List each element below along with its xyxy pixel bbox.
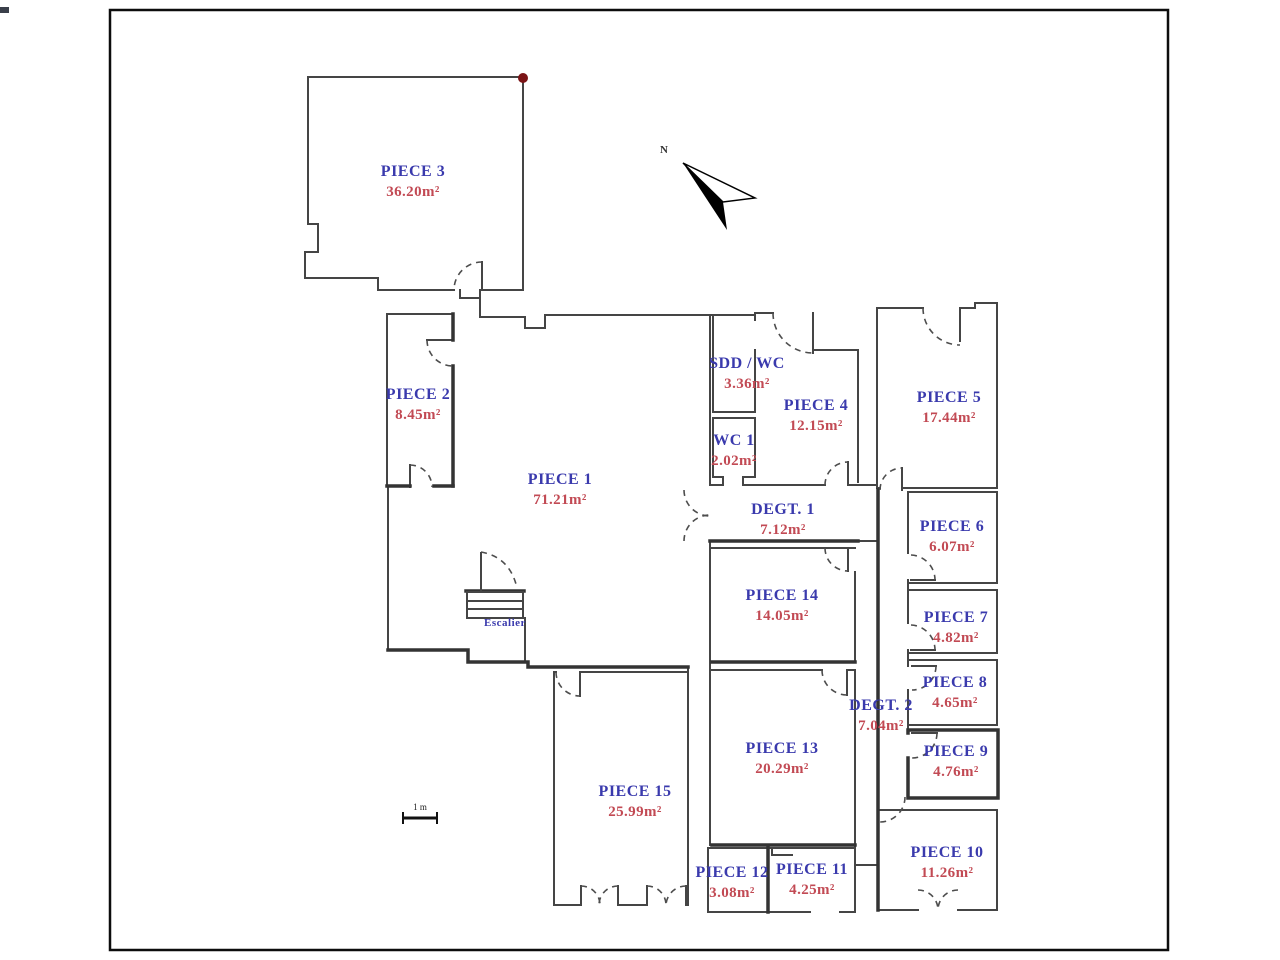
room-name: DEGT. 1 <box>751 501 815 518</box>
room-name: PIECE 7 <box>924 609 988 626</box>
room-area: 11.26m² <box>921 865 974 881</box>
room-name: PIECE 3 <box>381 163 445 180</box>
room-name: PIECE 14 <box>746 587 819 604</box>
floor-plan-page: Escalier N 1 m PIECE 171.21m²PIECE 28.45… <box>0 0 1280 960</box>
room-name: PIECE 1 <box>528 471 592 488</box>
room-area: 4.65m² <box>932 695 978 711</box>
room-area: 20.29m² <box>755 761 809 777</box>
room-area: 3.08m² <box>709 885 755 901</box>
room-area: 3.36m² <box>724 376 770 392</box>
room-area: 14.05m² <box>755 608 809 624</box>
room-name: PIECE 4 <box>784 397 848 414</box>
room-name: PIECE 2 <box>386 386 450 403</box>
stairs-label: Escalier <box>484 617 526 629</box>
north-label: N <box>660 144 668 156</box>
room-name: PIECE 6 <box>920 518 984 535</box>
room-area: 36.20m² <box>386 184 440 200</box>
room-area: 4.25m² <box>789 882 835 898</box>
floor-plan-canvas: Escalier N 1 m PIECE 171.21m²PIECE 28.45… <box>0 0 1280 960</box>
room-name: DEGT. 2 <box>849 697 913 714</box>
room-name: PIECE 15 <box>599 783 672 800</box>
room-area: 6.07m² <box>929 539 975 555</box>
room-name: PIECE 12 <box>696 864 769 881</box>
room-name: PIECE 10 <box>911 844 984 861</box>
room-name: SDD / WC <box>709 355 785 372</box>
room-area: 4.76m² <box>933 764 979 780</box>
room-name: PIECE 13 <box>746 740 819 757</box>
room-area: 25.99m² <box>608 804 662 820</box>
room-area: 17.44m² <box>922 410 976 426</box>
room-area: 71.21m² <box>533 492 587 508</box>
scale-bar-label: 1 m <box>413 802 427 812</box>
room-area: 8.45m² <box>395 407 441 423</box>
room-name: WC 1 <box>713 432 755 449</box>
room-area: 12.15m² <box>789 418 843 434</box>
room-name: PIECE 8 <box>923 674 987 691</box>
edge-artifact <box>0 7 9 13</box>
room-area: 2.02m² <box>711 453 757 469</box>
room-name: PIECE 11 <box>776 861 848 878</box>
room-area: 7.04m² <box>858 718 904 734</box>
room-area: 4.82m² <box>933 630 979 646</box>
room-name: PIECE 5 <box>917 389 981 406</box>
room-name: PIECE 9 <box>924 743 988 760</box>
corner-marker-dot <box>518 73 528 83</box>
room-area: 7.12m² <box>760 522 806 538</box>
